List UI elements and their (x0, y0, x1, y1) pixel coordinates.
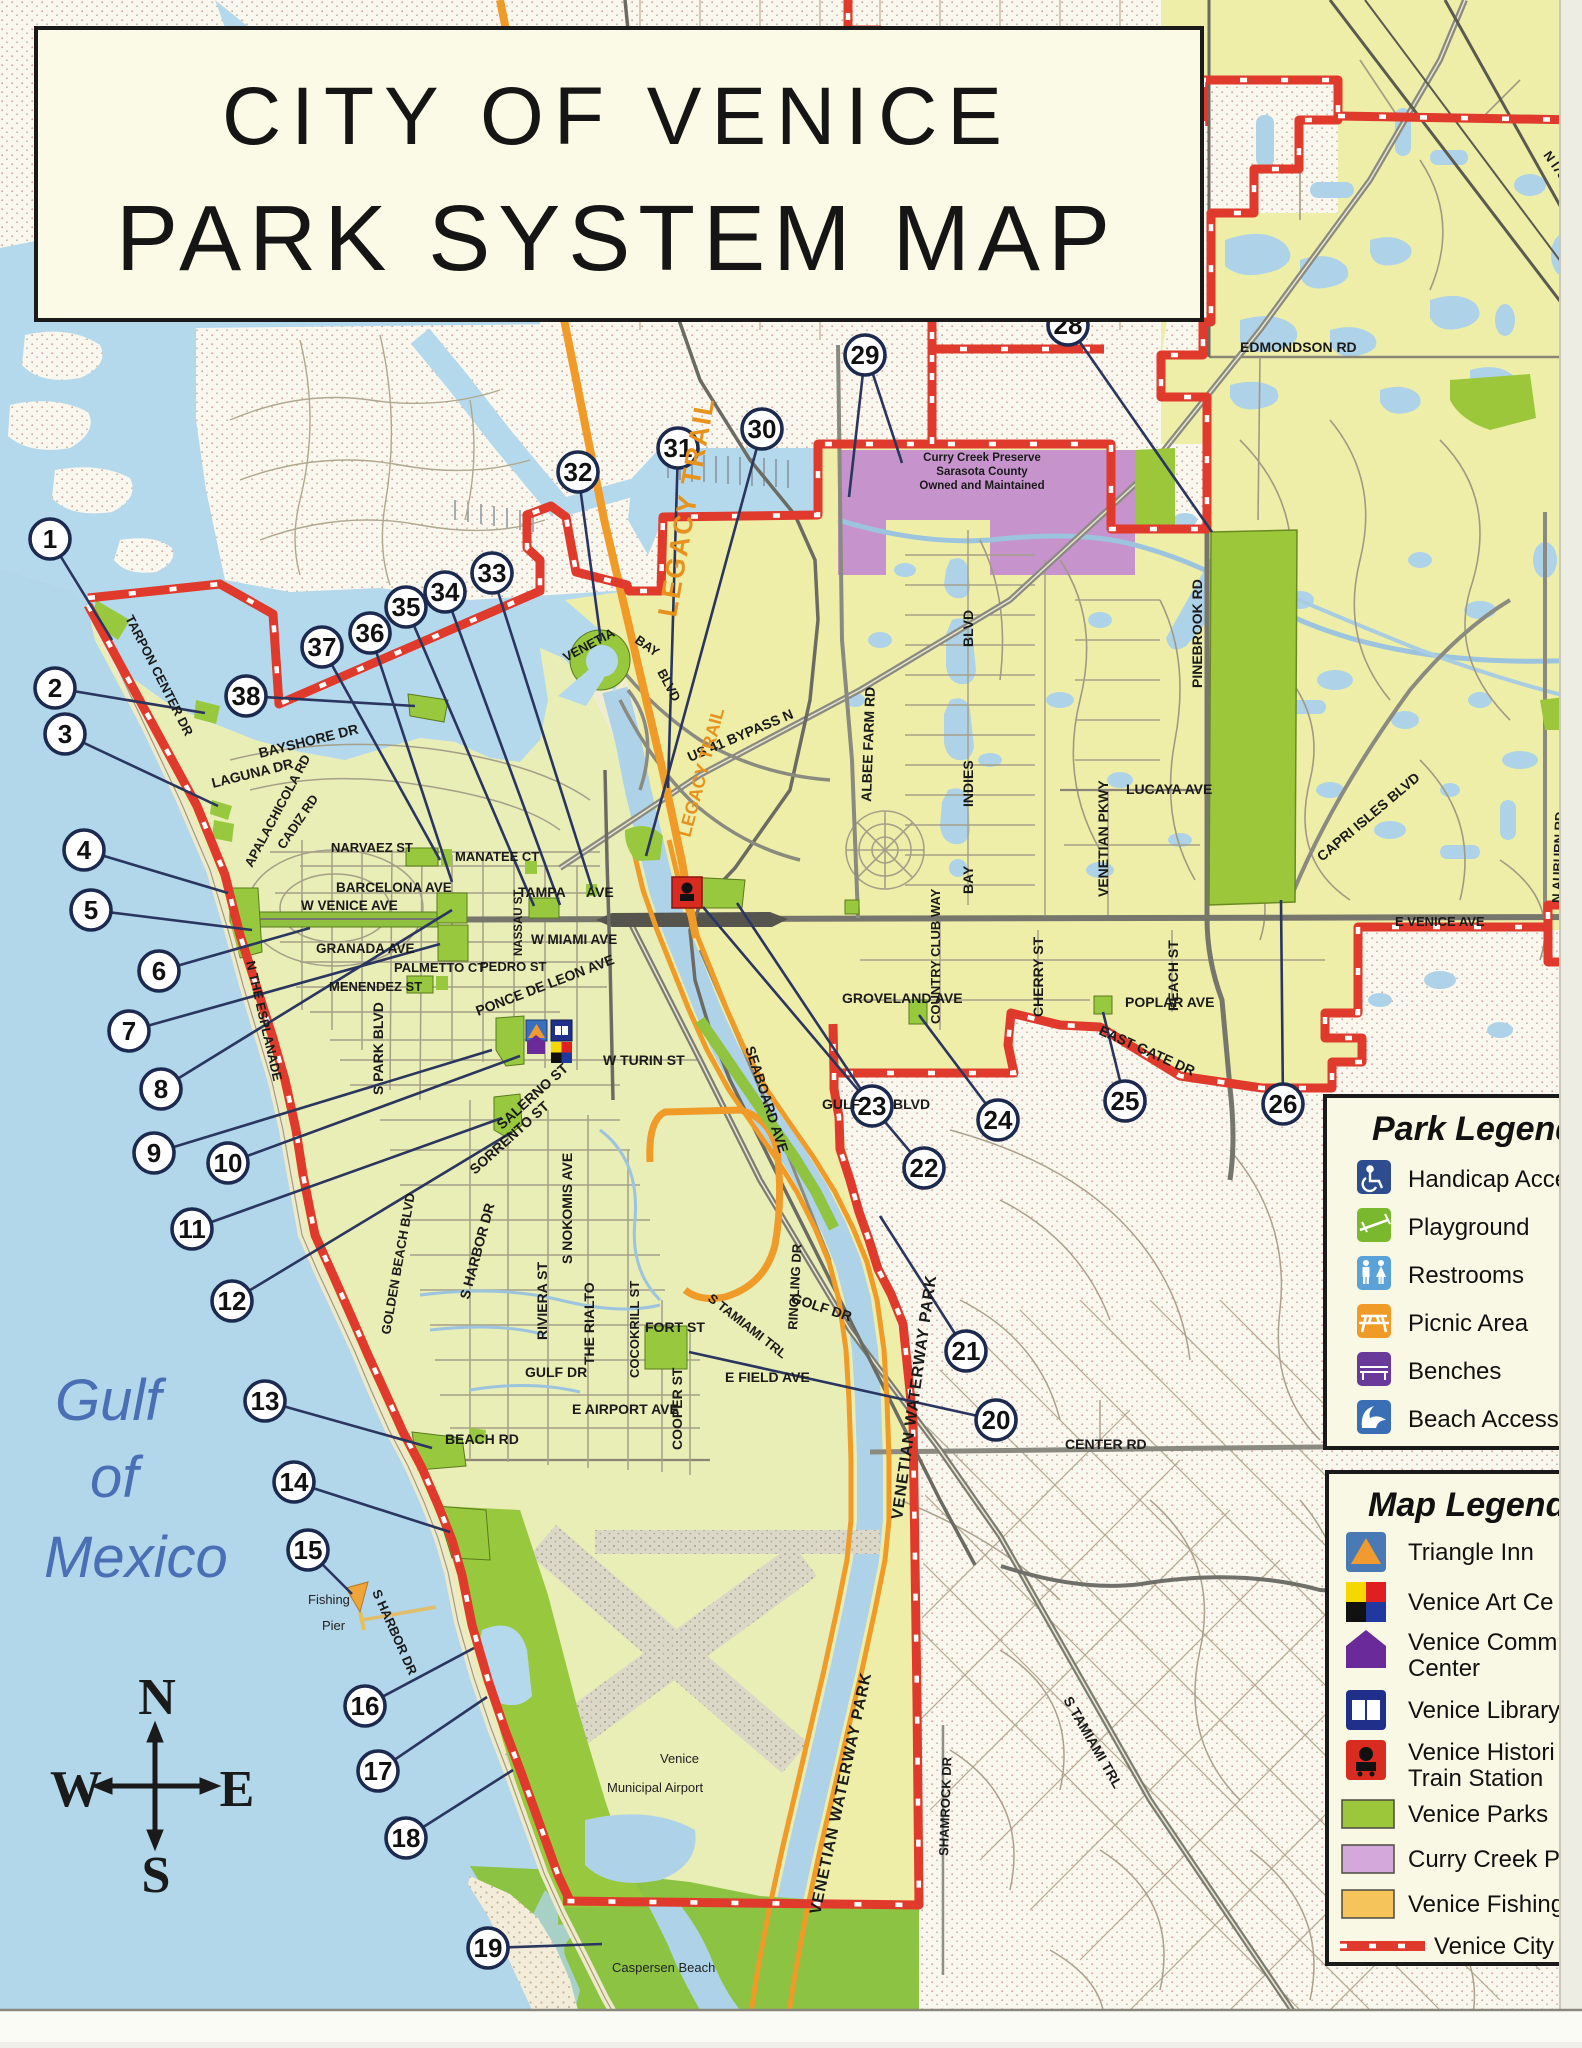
svg-text:CENTER RD: CENTER RD (1065, 1436, 1147, 1452)
svg-text:26: 26 (1269, 1089, 1298, 1119)
svg-text:Pier: Pier (322, 1618, 346, 1633)
svg-text:COOPER ST: COOPER ST (669, 1367, 685, 1450)
svg-text:Handicap Acce: Handicap Acce (1408, 1166, 1568, 1193)
svg-text:30: 30 (748, 414, 777, 444)
svg-text:Curry Creek P: Curry Creek P (1408, 1846, 1560, 1873)
svg-text:THE RIALTO: THE RIALTO (581, 1282, 597, 1365)
svg-text:Venice: Venice (660, 1751, 699, 1766)
svg-text:E VENICE AVE: E VENICE AVE (1395, 914, 1485, 929)
svg-text:Playground: Playground (1408, 1214, 1529, 1241)
svg-text:Venice Histori: Venice Histori (1408, 1739, 1555, 1766)
svg-text:Benches: Benches (1408, 1358, 1501, 1385)
svg-text:Gulf: Gulf (55, 1368, 167, 1433)
svg-text:INDIES: INDIES (960, 760, 976, 807)
svg-text:11: 11 (178, 1214, 206, 1244)
svg-text:Fishing: Fishing (308, 1592, 350, 1607)
svg-text:E FIELD AVE: E FIELD AVE (725, 1369, 810, 1385)
svg-text:POPLAR AVE: POPLAR AVE (1125, 994, 1214, 1010)
svg-text:Owned and Maintained: Owned and Maintained (919, 480, 1044, 492)
svg-text:Caspersen Beach: Caspersen Beach (612, 1960, 715, 1975)
svg-text:Map Legend: Map Legend (1368, 1486, 1568, 1524)
svg-text:S NOKOMIS AVE: S NOKOMIS AVE (559, 1153, 575, 1264)
svg-text:25: 25 (1111, 1086, 1140, 1116)
svg-text:Picnic Area: Picnic Area (1408, 1310, 1529, 1337)
svg-text:Venice Comm: Venice Comm (1408, 1629, 1557, 1656)
svg-text:36: 36 (356, 618, 385, 648)
svg-text:23: 23 (858, 1091, 887, 1121)
svg-text:32: 32 (564, 457, 593, 487)
svg-text:W TURIN ST: W TURIN ST (603, 1052, 685, 1068)
svg-text:LUCAYA AVE: LUCAYA AVE (1126, 781, 1212, 797)
svg-text:GRANADA AVE: GRANADA AVE (316, 941, 415, 956)
svg-text:Triangle Inn: Triangle Inn (1408, 1539, 1534, 1566)
svg-text:1: 1 (43, 524, 57, 554)
svg-text:37: 37 (308, 632, 337, 662)
svg-text:17: 17 (364, 1756, 393, 1786)
svg-text:CITY OF VENICE: CITY OF VENICE (222, 71, 1012, 162)
svg-text:20: 20 (982, 1405, 1011, 1435)
svg-text:W: W (50, 1761, 102, 1818)
svg-text:7: 7 (122, 1016, 136, 1046)
svg-text:MANATEE CT: MANATEE CT (455, 849, 539, 864)
svg-text:VENETIAN PKWY: VENETIAN PKWY (1095, 780, 1111, 897)
svg-text:33: 33 (478, 558, 507, 588)
svg-text:PEDRO ST: PEDRO ST (480, 959, 547, 974)
svg-text:GULF: GULF (822, 1096, 861, 1112)
svg-text:PINEBROOK RD: PINEBROOK RD (1189, 579, 1205, 688)
svg-text:of: of (90, 1445, 144, 1510)
svg-text:TAMPA: TAMPA (518, 884, 566, 900)
svg-text:BLVD: BLVD (893, 1096, 930, 1112)
svg-text:RIVIERA ST: RIVIERA ST (534, 1262, 550, 1340)
svg-text:Center: Center (1408, 1655, 1480, 1682)
svg-text:14: 14 (280, 1467, 309, 1497)
svg-text:Beach Access: Beach Access (1408, 1406, 1559, 1433)
svg-text:38: 38 (232, 681, 261, 711)
svg-text:16: 16 (351, 1691, 380, 1721)
svg-text:34: 34 (431, 577, 460, 607)
svg-text:Park Legend: Park Legend (1372, 1110, 1577, 1148)
svg-text:NARVAEZ ST: NARVAEZ ST (331, 840, 413, 855)
svg-text:PARK SYSTEM MAP: PARK SYSTEM MAP (116, 186, 1118, 290)
svg-text:BLVD: BLVD (960, 610, 976, 647)
svg-text:Restrooms: Restrooms (1408, 1262, 1524, 1289)
svg-text:21: 21 (952, 1336, 981, 1366)
svg-text:W MIAMI AVE: W MIAMI AVE (531, 932, 617, 947)
svg-text:W VENICE AVE: W VENICE AVE (301, 898, 398, 913)
svg-text:Train Station: Train Station (1408, 1765, 1543, 1792)
svg-text:5: 5 (84, 895, 98, 925)
svg-text:12: 12 (218, 1286, 247, 1316)
svg-text:Mexico: Mexico (44, 1525, 228, 1590)
svg-text:NASSAU ST: NASSAU ST (513, 890, 525, 956)
svg-text:35: 35 (392, 592, 421, 622)
svg-text:6: 6 (152, 956, 166, 986)
svg-text:22: 22 (910, 1153, 939, 1183)
svg-text:MENENDEZ ST: MENENDEZ ST (329, 979, 422, 994)
svg-text:10: 10 (214, 1148, 243, 1178)
svg-text:29: 29 (851, 340, 880, 370)
svg-text:COUNTRY CLUB WAY: COUNTRY CLUB WAY (928, 888, 943, 1024)
svg-text:S: S (142, 1847, 171, 1904)
svg-text:BAY: BAY (960, 865, 976, 894)
svg-text:3: 3 (58, 719, 72, 749)
svg-text:BEACH RD: BEACH RD (445, 1431, 519, 1447)
svg-text:AVE: AVE (586, 884, 614, 900)
svg-text:8: 8 (154, 1074, 168, 1104)
svg-text:18: 18 (392, 1823, 421, 1853)
svg-text:Venice Library: Venice Library (1408, 1697, 1560, 1724)
svg-text:Venice Fishing: Venice Fishing (1408, 1891, 1564, 1918)
svg-text:S PARK BLVD: S PARK BLVD (370, 1002, 386, 1095)
svg-text:COCOKRILL ST: COCOKRILL ST (627, 1281, 642, 1378)
svg-text:E AIRPORT AVE: E AIRPORT AVE (572, 1401, 679, 1417)
svg-text:E: E (220, 1761, 255, 1818)
svg-text:15: 15 (294, 1535, 323, 1565)
svg-text:CHERRY ST: CHERRY ST (1030, 936, 1046, 1017)
svg-text:24: 24 (984, 1105, 1013, 1135)
svg-text:2: 2 (48, 673, 62, 703)
svg-text:Sarasota County: Sarasota County (936, 466, 1028, 478)
svg-text:FORT ST: FORT ST (645, 1319, 705, 1335)
svg-text:Venice Parks: Venice Parks (1408, 1801, 1548, 1828)
svg-text:EDMONDSON RD: EDMONDSON RD (1240, 339, 1357, 355)
svg-text:19: 19 (474, 1933, 503, 1963)
svg-text:9: 9 (147, 1138, 161, 1168)
svg-text:GULF DR: GULF DR (525, 1364, 587, 1380)
svg-text:4: 4 (77, 835, 92, 865)
svg-text:Venice Art Ce: Venice Art Ce (1408, 1589, 1553, 1616)
svg-text:13: 13 (251, 1386, 280, 1416)
svg-text:Venice City Li: Venice City Li (1434, 1933, 1579, 1960)
svg-text:GROVELAND AVE: GROVELAND AVE (842, 990, 963, 1006)
svg-text:Curry Creek Preserve: Curry Creek Preserve (923, 452, 1041, 464)
svg-text:Municipal Airport: Municipal Airport (607, 1780, 703, 1795)
svg-text:PALMETTO CT: PALMETTO CT (394, 960, 485, 975)
svg-text:N: N (138, 1669, 176, 1726)
svg-text:BARCELONA AVE: BARCELONA AVE (336, 880, 452, 895)
